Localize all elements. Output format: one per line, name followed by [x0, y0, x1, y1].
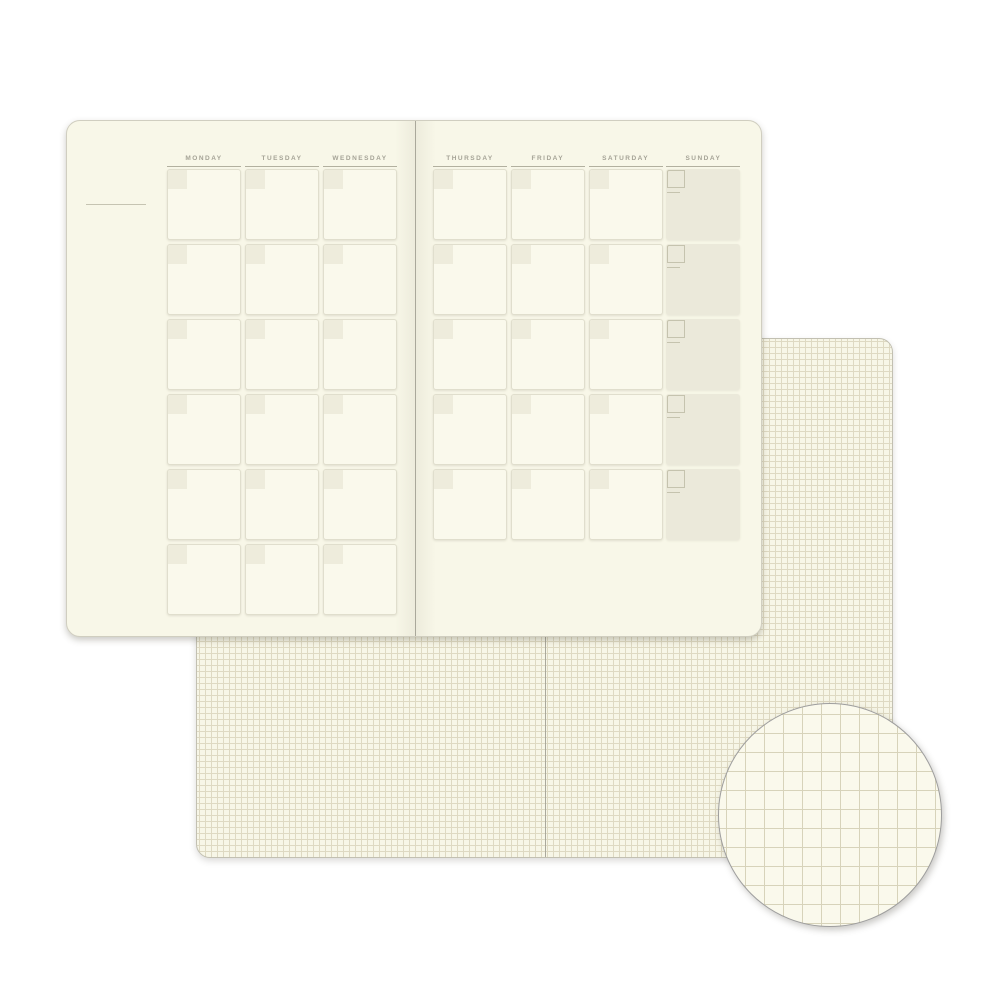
date-box — [168, 245, 187, 264]
date-box — [590, 470, 609, 489]
date-box — [324, 545, 343, 564]
calendar-cell — [245, 394, 319, 465]
date-box — [246, 395, 265, 414]
date-box — [590, 245, 609, 264]
date-box — [512, 470, 531, 489]
date-box — [246, 320, 265, 339]
date-box — [168, 545, 187, 564]
calendar-cell — [511, 469, 585, 540]
calendar-column-thursday: THURSDAY — [433, 154, 507, 540]
date-box — [590, 170, 609, 189]
date-box — [324, 320, 343, 339]
calendar-cell — [589, 244, 663, 315]
date-box-subline — [667, 417, 680, 418]
date-box — [434, 170, 453, 189]
date-box — [434, 470, 453, 489]
calendar-cell — [433, 469, 507, 540]
calendar-cell — [167, 544, 241, 615]
product-scene: MONDAYTUESDAYWEDNESDAY THURSDAYFRIDAYSAT… — [0, 0, 1000, 1000]
calendar-column-tuesday: TUESDAY — [245, 154, 319, 615]
date-box — [246, 245, 265, 264]
date-box-subline — [667, 342, 680, 343]
date-box-subline — [667, 192, 680, 193]
day-header-underline — [511, 166, 585, 167]
date-box — [434, 320, 453, 339]
date-box — [168, 320, 187, 339]
calendar-cell — [167, 169, 241, 240]
day-header-underline — [433, 166, 507, 167]
grid-detail-magnifier-circle — [718, 703, 942, 927]
calendar-cell — [323, 469, 397, 540]
calendar-cell — [167, 394, 241, 465]
date-box-subline — [667, 267, 680, 268]
calendar-cell — [245, 544, 319, 615]
calendar-cell-sunday — [666, 169, 740, 240]
calendar-cell — [433, 319, 507, 390]
calendar-cell — [323, 544, 397, 615]
calendar-cell — [433, 244, 507, 315]
calendar-column-sunday: SUNDAY — [666, 154, 740, 540]
calendar-cell — [167, 319, 241, 390]
calendar-cell — [589, 469, 663, 540]
calendar-cell — [245, 244, 319, 315]
date-box — [324, 395, 343, 414]
calendar-cell — [323, 394, 397, 465]
calendar-cell — [433, 169, 507, 240]
calendar-cell-sunday — [666, 394, 740, 465]
calendar-cell — [511, 244, 585, 315]
calendar-left-page: MONDAYTUESDAYWEDNESDAY — [67, 121, 415, 636]
day-header-underline — [245, 166, 319, 167]
calendar-cell-sunday — [666, 319, 740, 390]
date-box — [512, 395, 531, 414]
calendar-column-wednesday: WEDNESDAY — [323, 154, 397, 615]
date-box — [324, 470, 343, 489]
calendar-cell — [511, 169, 585, 240]
day-header-underline — [167, 166, 241, 167]
calendar-cell — [589, 394, 663, 465]
calendar-cell — [511, 394, 585, 465]
calendar-cell — [167, 469, 241, 540]
calendar-cell — [323, 319, 397, 390]
calendar-cell — [245, 319, 319, 390]
calendar-cell — [511, 319, 585, 390]
date-box — [512, 170, 531, 189]
calendar-cell — [167, 244, 241, 315]
date-box — [168, 170, 187, 189]
date-box — [168, 470, 187, 489]
date-box — [434, 245, 453, 264]
date-box — [590, 320, 609, 339]
date-box-outline — [667, 320, 685, 338]
calendar-cell-sunday — [666, 469, 740, 540]
date-box — [324, 245, 343, 264]
date-box — [512, 245, 531, 264]
calendar-right-page: THURSDAYFRIDAYSATURDAYSUNDAY — [415, 121, 763, 636]
date-box — [590, 395, 609, 414]
date-box-outline — [667, 395, 685, 413]
day-header-label: WEDNESDAY — [313, 154, 407, 165]
date-box — [246, 170, 265, 189]
calendar-cell-sunday — [666, 244, 740, 315]
date-box — [324, 170, 343, 189]
calendar-cell — [323, 244, 397, 315]
month-title-line — [86, 204, 146, 205]
calendar-column-saturday: SATURDAY — [589, 154, 663, 540]
calendar-cell — [433, 394, 507, 465]
date-box-outline — [667, 170, 685, 188]
day-header-label: SUNDAY — [656, 154, 750, 165]
date-box — [246, 470, 265, 489]
date-box — [168, 395, 187, 414]
calendar-cell — [589, 319, 663, 390]
date-box-outline — [667, 470, 685, 488]
day-header-underline — [323, 166, 397, 167]
calendar-cell — [245, 169, 319, 240]
calendar-cell — [589, 169, 663, 240]
day-header-underline — [589, 166, 663, 167]
calendar-column-monday: MONDAY — [167, 154, 241, 615]
day-header-underline — [666, 166, 740, 167]
calendar-cell — [323, 169, 397, 240]
date-box — [512, 320, 531, 339]
calendar-column-friday: FRIDAY — [511, 154, 585, 540]
monthly-calendar-notebook: MONDAYTUESDAYWEDNESDAY THURSDAYFRIDAYSAT… — [66, 120, 762, 637]
date-box-subline — [667, 492, 680, 493]
calendar-cell — [245, 469, 319, 540]
date-box — [434, 395, 453, 414]
date-box — [246, 545, 265, 564]
date-box-outline — [667, 245, 685, 263]
